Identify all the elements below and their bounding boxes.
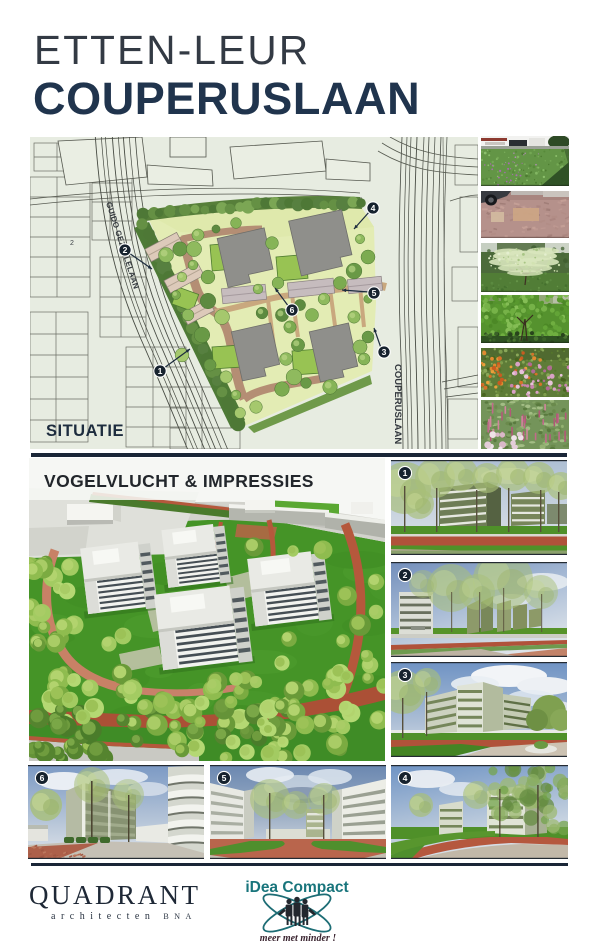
svg-text:2: 2 — [70, 240, 74, 247]
svg-text:COUPERUSLAAN: COUPERUSLAAN — [392, 364, 403, 444]
svg-text:meer met minder !: meer met minder ! — [260, 933, 336, 944]
svg-text:iDea Compact: iDea Compact — [245, 879, 348, 896]
svg-text:6: 6 — [290, 305, 295, 315]
svg-text:2: 2 — [123, 245, 128, 255]
svg-text:2: 2 — [403, 570, 408, 580]
svg-text:1: 1 — [403, 468, 408, 478]
svg-text:5: 5 — [222, 773, 227, 783]
svg-text:VOGELVLUCHT & IMPRESSIES: VOGELVLUCHT & IMPRESSIES — [44, 471, 314, 491]
svg-text:SITUATIE: SITUATIE — [46, 422, 124, 440]
svg-text:4: 4 — [403, 773, 408, 783]
svg-text:1: 1 — [158, 366, 163, 376]
svg-text:3: 3 — [382, 347, 387, 357]
svg-text:4: 4 — [371, 203, 376, 213]
svg-text:6: 6 — [40, 773, 45, 783]
svg-text:5: 5 — [372, 288, 377, 298]
svg-text:3: 3 — [403, 670, 408, 680]
